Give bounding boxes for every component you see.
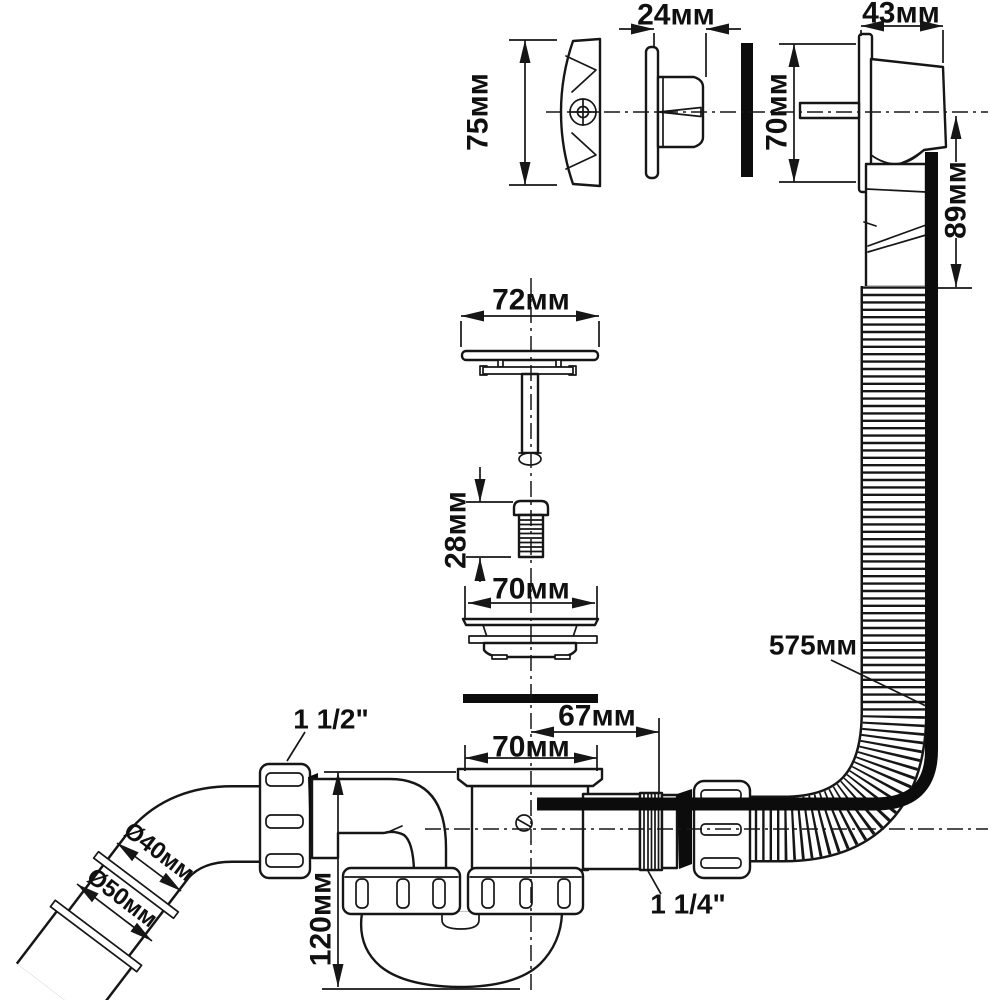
inlet-nut xyxy=(260,764,310,878)
bath-waste-overflow-diagram: 75мм 24мм 43мм 70мм 89мм xyxy=(0,0,1000,1000)
dim-label-overflow-thread: 1 1/4" xyxy=(650,889,726,920)
dim-label-72mm: 72мм xyxy=(492,284,570,317)
dim-label-75mm: 75мм xyxy=(462,73,495,151)
dim-label-43mm: 43мм xyxy=(862,0,940,30)
overflow-tail-tube xyxy=(864,164,926,287)
dim-label-67mm: 67мм xyxy=(558,700,636,733)
dim-label-120mm: 120мм xyxy=(305,872,338,966)
dim-label-inlet-thread: 1 1/2" xyxy=(293,704,369,735)
dim-label-70mm-siphon: 70мм xyxy=(492,731,570,764)
trap-nut-left xyxy=(343,868,460,914)
dim-label-70mm-overflow: 70мм xyxy=(761,73,794,151)
overflow-rod xyxy=(800,103,859,118)
plug-stem xyxy=(522,374,538,453)
dim-label-575mm: 575мм xyxy=(769,630,857,661)
siphon-top-flange xyxy=(458,769,602,786)
tub-wall-section xyxy=(741,43,753,177)
dim-label-28mm: 28мм xyxy=(440,491,473,569)
dim-label-89mm: 89мм xyxy=(940,161,973,239)
plug-foot xyxy=(519,453,541,465)
technical-drawing-page: 75мм 24мм 43мм 70мм 89мм xyxy=(0,0,1000,1000)
dim-label-70mm-strainer: 70мм xyxy=(492,573,570,606)
dim-label-24mm: 24мм xyxy=(637,0,715,32)
trap-nut-right xyxy=(468,868,583,914)
